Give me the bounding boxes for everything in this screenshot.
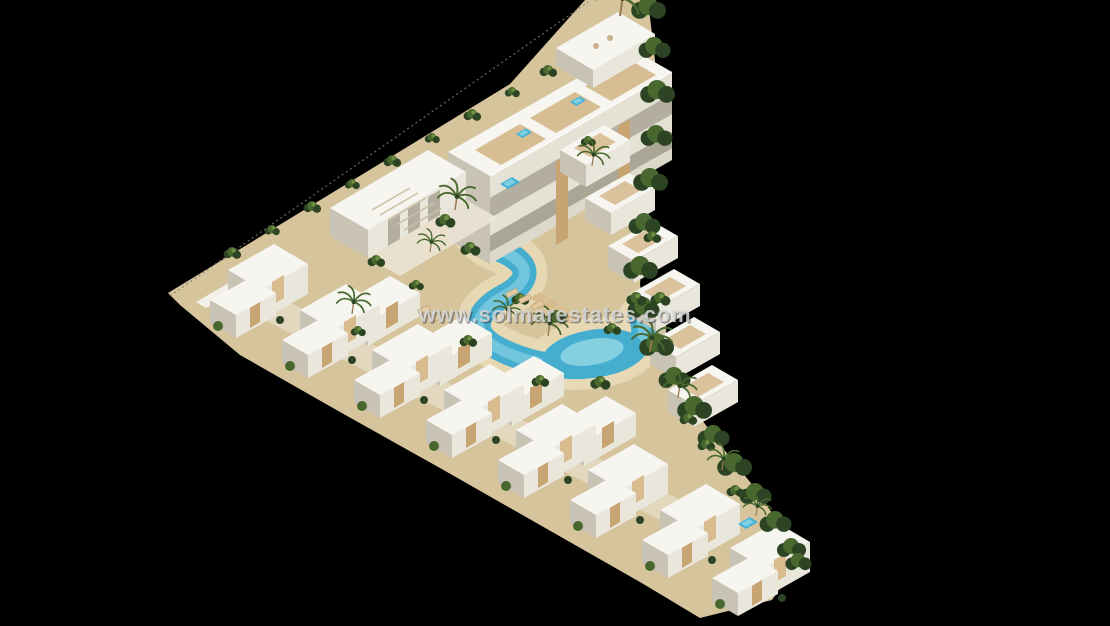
watermark-text: www.solmarestates.com bbox=[418, 302, 692, 327]
property-aerial-render: www.solmarestates.com www.solmarestates.… bbox=[0, 0, 1110, 626]
render-stage: www.solmarestates.com www.solmarestates.… bbox=[0, 0, 1110, 626]
watermark: www.solmarestates.com www.solmarestates.… bbox=[418, 302, 693, 329]
